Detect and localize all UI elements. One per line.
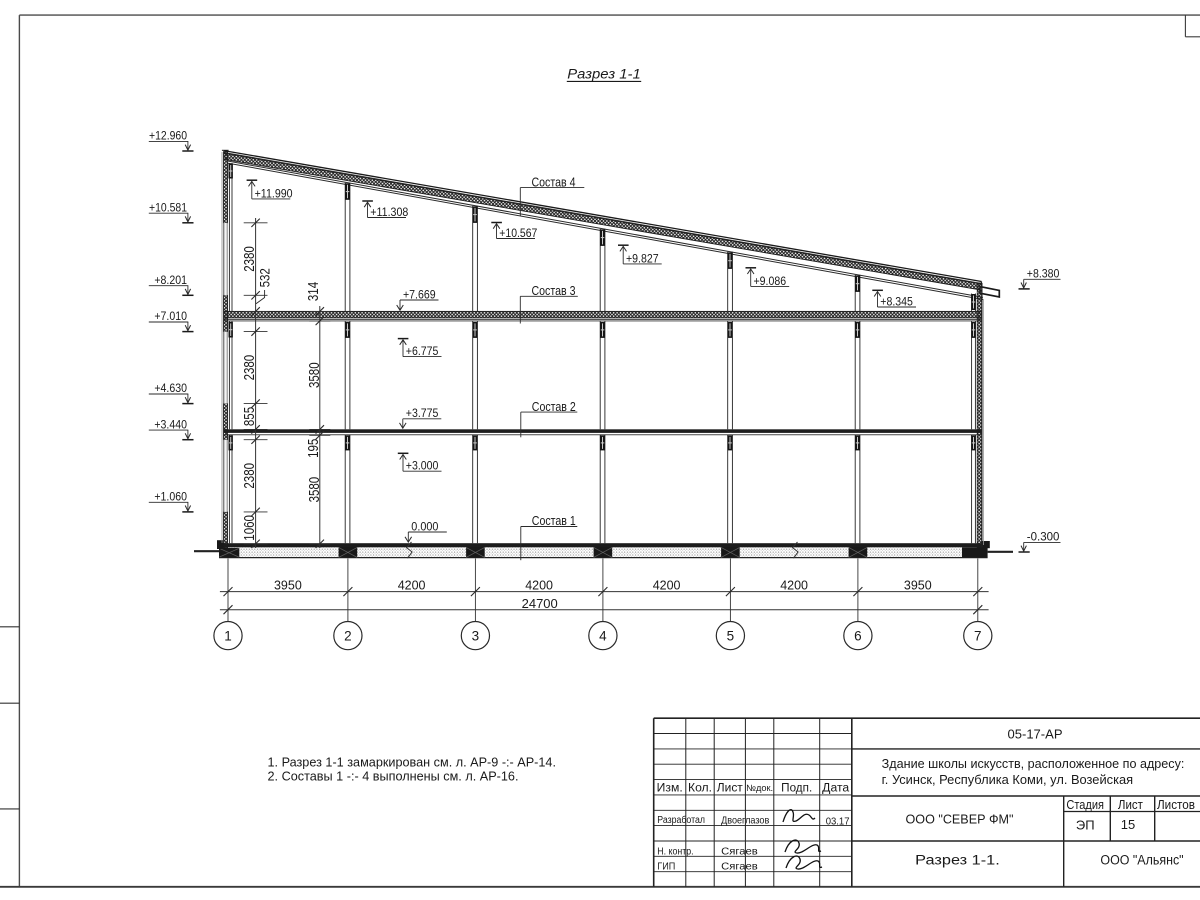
svg-text:Сягаев: Сягаев bbox=[721, 845, 758, 857]
svg-text:+9.086: +9.086 bbox=[754, 274, 787, 288]
svg-text:7: 7 bbox=[974, 628, 982, 643]
svg-text:1: 1 bbox=[224, 628, 232, 643]
svg-text:2380: 2380 bbox=[241, 246, 258, 272]
svg-text:2. Составы 1 -:- 4 выполнены с: 2. Составы 1 -:- 4 выполнены см. л. АР-1… bbox=[268, 768, 519, 783]
svg-text:Здание школы искусств, располо: Здание школы искусств, расположенное по … bbox=[882, 757, 1185, 771]
svg-text:Дата: Дата bbox=[822, 783, 850, 795]
svg-text:2380: 2380 bbox=[241, 463, 258, 489]
svg-text:4200: 4200 bbox=[525, 578, 553, 592]
svg-text:3950: 3950 bbox=[904, 578, 932, 592]
svg-text:5: 5 bbox=[727, 628, 735, 643]
svg-text:Н. контр.: Н. контр. bbox=[657, 847, 693, 858]
svg-text:Подп.: Подп. bbox=[781, 783, 812, 795]
svg-text:+3.440: +3.440 bbox=[154, 417, 187, 431]
svg-text:855: 855 bbox=[241, 407, 258, 426]
svg-text:0.000: 0.000 bbox=[411, 519, 438, 533]
svg-text:+9.827: +9.827 bbox=[626, 251, 659, 265]
svg-text:+12.960: +12.960 bbox=[149, 129, 187, 143]
svg-text:15: 15 bbox=[1121, 817, 1135, 832]
svg-text:-0.300: -0.300 bbox=[1027, 530, 1060, 544]
svg-text:6: 6 bbox=[854, 628, 862, 643]
svg-text:Лист: Лист bbox=[1118, 798, 1143, 812]
svg-text:05-17-АР: 05-17-АР bbox=[1008, 727, 1063, 742]
svg-text:Двоеглазов: Двоеглазов bbox=[721, 815, 770, 827]
svg-text:3580: 3580 bbox=[306, 477, 323, 503]
svg-text:+6.775: +6.775 bbox=[406, 344, 439, 358]
svg-text:2380: 2380 bbox=[241, 355, 258, 381]
svg-text:г. Усинск, Республика Коми, ул: г. Усинск, Республика Коми, ул. Возейска… bbox=[882, 773, 1133, 787]
svg-text:Изм.: Изм. bbox=[657, 783, 683, 795]
svg-text:+8.201: +8.201 bbox=[154, 273, 187, 287]
svg-text:Разрез 1-1.: Разрез 1-1. bbox=[915, 853, 1000, 868]
svg-text:4200: 4200 bbox=[653, 578, 681, 592]
svg-text:№док.: №док. bbox=[746, 783, 773, 793]
svg-text:Лист: Лист bbox=[717, 783, 744, 795]
svg-text:ООО "Альянс": ООО "Альянс" bbox=[1100, 853, 1183, 868]
svg-text:+3.000: +3.000 bbox=[406, 459, 439, 473]
svg-text:+10.567: +10.567 bbox=[499, 226, 537, 240]
svg-text:24700: 24700 bbox=[522, 596, 558, 611]
svg-text:+8.380: +8.380 bbox=[1027, 267, 1060, 281]
svg-text:ООО "СЕВЕР ФМ": ООО "СЕВЕР ФМ" bbox=[906, 811, 1014, 826]
svg-text:Кол.: Кол. bbox=[688, 783, 712, 795]
svg-text:Стадия: Стадия bbox=[1066, 798, 1104, 812]
svg-text:532: 532 bbox=[256, 268, 272, 287]
svg-text:+4.630: +4.630 bbox=[154, 381, 187, 395]
svg-text:3580: 3580 bbox=[306, 362, 323, 388]
svg-text:+7.669: +7.669 bbox=[403, 287, 436, 301]
svg-text:03.17: 03.17 bbox=[826, 817, 850, 828]
svg-text:Сягаев: Сягаев bbox=[721, 861, 758, 873]
svg-text:3950: 3950 bbox=[274, 578, 302, 592]
svg-text:+3.775: +3.775 bbox=[406, 406, 439, 420]
svg-text:2: 2 bbox=[344, 628, 352, 643]
svg-text:314: 314 bbox=[305, 282, 322, 301]
svg-text:ЭП: ЭП bbox=[1076, 818, 1095, 833]
svg-text:ГИП: ГИП bbox=[657, 862, 675, 873]
svg-text:4200: 4200 bbox=[780, 578, 808, 592]
svg-text:+10.581: +10.581 bbox=[149, 200, 187, 214]
svg-text:+8.345: +8.345 bbox=[880, 294, 913, 308]
svg-text:+7.010: +7.010 bbox=[154, 309, 187, 323]
svg-text:4200: 4200 bbox=[398, 578, 426, 592]
svg-text:+11.990: +11.990 bbox=[255, 186, 293, 200]
svg-text:Листов: Листов bbox=[1157, 798, 1195, 812]
svg-text:+1.060: +1.060 bbox=[154, 490, 187, 504]
svg-text:1. Разрез 1-1 замаркирован см.: 1. Разрез 1-1 замаркирован см. л. АР-9 -… bbox=[268, 755, 557, 770]
svg-text:1060: 1060 bbox=[241, 515, 258, 541]
svg-text:4: 4 bbox=[599, 628, 607, 643]
svg-text:Разрез 1-1: Разрез 1-1 bbox=[567, 67, 641, 82]
svg-text:195: 195 bbox=[305, 439, 322, 458]
svg-text:Разработал: Разработал bbox=[657, 814, 705, 826]
svg-text:3: 3 bbox=[472, 628, 480, 643]
svg-text:+11.308: +11.308 bbox=[370, 205, 408, 219]
